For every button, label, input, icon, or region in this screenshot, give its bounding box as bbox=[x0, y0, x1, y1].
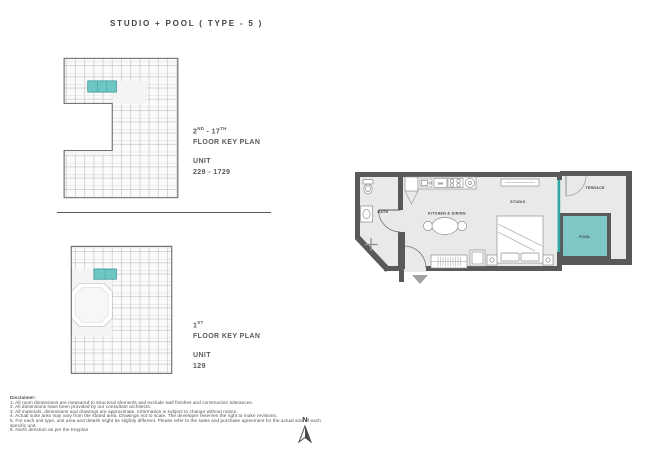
pool-label: POOL bbox=[579, 235, 591, 239]
key-plan-upper-drawing bbox=[57, 54, 185, 204]
unit-floor-plan-drawing: DW bbox=[354, 158, 646, 298]
floor-key-plan-caption: FLOOR KEY PLAN bbox=[193, 138, 260, 149]
key-plan-upper-label: 2ND - 17TH FLOOR KEY PLAN UNIT 229 - 172… bbox=[193, 126, 260, 178]
armchair-icon bbox=[470, 250, 485, 266]
unit-range: 229 - 1729 bbox=[193, 168, 260, 179]
sliding-door bbox=[558, 180, 561, 252]
disclaimer: Disclaimer: 1. All room dimensions are m… bbox=[10, 396, 330, 433]
unit-range: 129 bbox=[193, 362, 260, 373]
disclaimer-line: 6. North direction as per the Keyplan bbox=[10, 428, 330, 433]
washer-icon bbox=[465, 178, 474, 187]
floor-range: 2ND - 17TH bbox=[193, 126, 260, 138]
entrance-marker-icon bbox=[412, 275, 428, 284]
dishwasher-label: DW bbox=[438, 182, 443, 186]
unit-caption: UNIT bbox=[193, 157, 260, 168]
floor-key-plan-caption: FLOOR KEY PLAN bbox=[193, 332, 260, 343]
page-title: STUDIO + POOL ( TYPE - 5 ) bbox=[110, 19, 263, 28]
bath-label: BATH bbox=[378, 210, 389, 214]
sink-icon bbox=[361, 206, 373, 222]
key-plan-lower-drawing bbox=[57, 240, 185, 386]
brochure-page: STUDIO + POOL ( TYPE - 5 ) 2ND - 17TH FL… bbox=[0, 0, 660, 455]
key-plan-lower-label: 1ST FLOOR KEY PLAN UNIT 129 bbox=[193, 320, 260, 372]
key-plan-upper-highlighted-unit bbox=[88, 81, 117, 92]
section-divider bbox=[57, 212, 271, 213]
unit-caption: UNIT bbox=[193, 351, 260, 362]
kitchen-dining-label: KITCHEN & DINING bbox=[428, 212, 466, 216]
wardrobe-icon bbox=[431, 255, 467, 268]
toilet-icon bbox=[363, 180, 373, 195]
bed-icon bbox=[497, 216, 543, 263]
studio-label: STUDIO bbox=[510, 200, 525, 204]
floor-range: 1ST bbox=[193, 320, 260, 332]
fridge-icon bbox=[405, 177, 418, 191]
terrace-label: TERRACE bbox=[585, 186, 605, 190]
